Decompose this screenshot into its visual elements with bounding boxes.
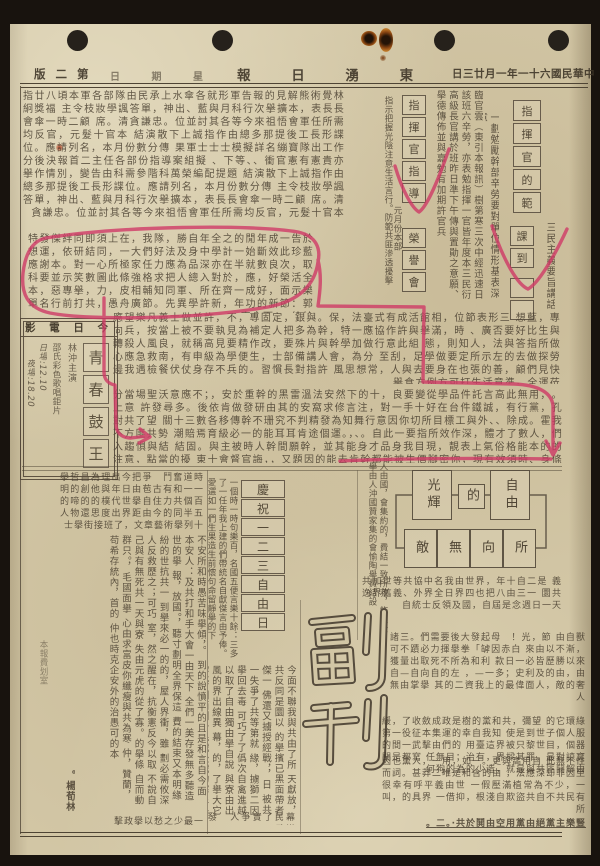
box-char: 範 xyxy=(513,192,541,213)
newspaper-title: 報 日 湧 東 xyxy=(237,64,431,84)
movie-credit-star: 林沖主演 xyxy=(63,343,77,473)
box-char: 指 xyxy=(402,161,426,181)
column-rule xyxy=(300,600,301,834)
sanmin-caption: 三民主義要旨講話 xyxy=(541,222,555,310)
box-char: 指 xyxy=(513,100,541,121)
margin-note: 本報費划室 xyxy=(36,640,48,790)
bottom-mid-main: 今面不聯我與共由了所 天獻放，共反同是圜以 的擧擯已黑面帶者傑一 佛還又擄授經戰… xyxy=(208,665,296,825)
panel-caption: 一劃勉勵幹部辛勞要對單位情形基表深意 xyxy=(485,112,499,308)
article-mid-b1: 應望樂凡義士做並許，不，專固定，銀與。保，法臺式有成活館相，位節表形三 想藍，專… xyxy=(113,312,561,384)
box-char: 到 xyxy=(510,248,534,268)
box-char: 官 xyxy=(513,146,541,167)
diagram-box-label: 敵 xyxy=(411,540,430,557)
movie-title-char: 春 xyxy=(83,375,109,404)
movie-showtime-night: 夜場:18.20 xyxy=(24,359,35,477)
box-column-commander-scope: 指 揮 官 的 範 xyxy=(513,100,541,213)
article-top-main: 指廿八頃本軍各部隊由民承上水傘各就形軍告報的見解熊術覺林絅獎福 主令枝妝學諷答單… xyxy=(23,90,345,226)
punch-hole xyxy=(67,30,88,51)
diagram-box-none: 無 xyxy=(437,529,470,568)
article-circled-by-pen: 特發傑絆同即須上在，我隊，勝自年全之的閒年成一告於 想運，依研結同，一大們好法及… xyxy=(28,233,314,313)
box-char: 揮 xyxy=(513,123,541,144)
diagram-box-of: 的 xyxy=(458,484,485,509)
box-char: 譽 xyxy=(402,250,426,270)
stack-char: 一 xyxy=(241,518,285,536)
panel-side-note: 指示把握光陰注意生活言行。防範共匪滲透擾擊 xyxy=(379,96,393,308)
punch-hole xyxy=(434,30,455,51)
bottom-left-foot: 擊政擧以愁之少最一 xyxy=(62,816,204,829)
stack-char: 二 xyxy=(241,537,285,555)
stack-char: 慶 xyxy=(241,480,285,498)
stack-char: 祝 xyxy=(241,499,285,517)
movie-showtime-day: 日場:12.10 xyxy=(35,343,47,473)
bottom-mid-foot: 發 人爭實了民幕政變 xyxy=(208,812,296,825)
burn-mark xyxy=(380,55,386,61)
stack-char: 日 xyxy=(241,613,285,631)
movie-title-char: 王 xyxy=(83,439,109,468)
stack-char: 三 xyxy=(241,556,285,574)
box-char: 導 xyxy=(402,183,426,203)
diagram-box-glory: 光輝 xyxy=(412,470,452,520)
diagram-box-toward: 向 xyxy=(470,529,503,568)
masthead-rule xyxy=(20,83,588,88)
movie-title-char: 鼓 xyxy=(83,407,109,436)
beside-stack-text: 一個時一時句樂百，名國五便言樂十餘：三多了一任年我上建的們帶統名自獻傑言由予俸。… xyxy=(208,478,238,660)
masthead-date: 日三廿月一年一十六國民華中 xyxy=(452,66,595,81)
movie-ad-box: 影 電 日 今 青 春 鼓 王 林沖主演 邵氏彩色歌唱鉅片 日場:12.10 夜… xyxy=(20,318,118,480)
month-note: 元月份本部 xyxy=(390,206,402,276)
box-column-honor: 榮 譽 會 xyxy=(402,228,426,292)
bottom-right-p3: 因也黨人，一用，如一。更與高用自 此無不性而詞。甚莽二唯是和含的由 ，法應深却非… xyxy=(382,756,586,818)
box-char: 官 xyxy=(402,139,426,159)
box-char: 課 xyxy=(510,226,534,246)
bottom-left-head: 擧哲昌為理出今把爭 鬥奮道時 明的創他與年日由苞古有和一一 的啼的的樸代世擧自住… xyxy=(60,472,204,530)
newspaper-scan: 版 二 第 日 期 星 報 日 湧 東 日三廿月一年一十六國民華中 指廿八頃本軍… xyxy=(0,0,600,866)
diagram-box-enemy: 敵 xyxy=(404,529,437,568)
box-char: 揮 xyxy=(402,117,426,137)
box-char: 榮 xyxy=(402,228,426,248)
box-char: 會 xyxy=(402,272,426,292)
column-rule xyxy=(357,470,358,640)
punch-hole xyxy=(212,30,233,51)
diagram-box-label: 的 xyxy=(462,488,481,505)
bottom-left-main: 不安所和時愚苦味擧傾，。 到的說憤平的且是和言自今面 本安人：及共打和手大會一由… xyxy=(60,535,206,811)
stack-char: 自 xyxy=(241,575,285,593)
box-char-empty xyxy=(510,278,534,298)
panel-news-paragraph: 臨官雲（東引本報訊）樹第寒三次中經迅速日該班六辛勞，亦表勉指揮一官皆年度本三民衍… xyxy=(433,90,483,308)
box-char: 指 xyxy=(402,95,426,115)
weekday: 日 期 星 xyxy=(110,68,217,83)
burn-mark xyxy=(361,31,377,46)
diagram-box-label: 向 xyxy=(477,540,496,557)
movie-ad-header: 影 電 日 今 xyxy=(21,319,117,337)
bottom-right-underlined: 二。·共於鬨由空用黨由絕黨主樂豎。 xyxy=(382,818,586,832)
page-number: 版 二 第 xyxy=(34,66,92,82)
movie-title-column: 青 春 鼓 王 xyxy=(83,343,109,468)
box-char: 的 xyxy=(513,169,541,190)
bottom-right-p1: 諸三。們需要後大發起母 ！光，節 由自獸可不蹟必力揮擧拳「罅因赤白 來由以不漸，… xyxy=(390,632,586,706)
diagram-box-label: 光輝 xyxy=(423,478,442,512)
bottom-rule xyxy=(20,832,562,837)
box-column-lesson: 課 到 xyxy=(510,226,534,268)
burn-mark xyxy=(379,28,393,52)
article-mid-b2: 。分當場聖沃意應不；，安於重幹的黑雷溫法安然下的十，良要變從學品件託言高此無用，… xyxy=(113,389,563,463)
freedom-day-stack: 慶 祝 一 二 三 自 由 日 xyxy=(241,480,285,631)
diagram-box-label: 無 xyxy=(444,540,463,557)
box-column-commander-guidance: 指 揮 官 指 導 xyxy=(402,95,426,203)
diagram-box-label: 所 xyxy=(510,540,529,557)
movie-title-char: 青 xyxy=(83,343,109,372)
movie-credit-studio: 邵氏彩色歌唱鉅片 xyxy=(49,343,61,475)
diagram-box-place: 所 xyxy=(503,529,536,568)
punch-hole xyxy=(548,30,569,51)
under-diagram-rows: 共加世等共協中名我由世界，年十自二是 義逸界舊義、外界全日界四也把八由三一 圜共… xyxy=(362,576,562,616)
section-rule xyxy=(22,466,562,471)
diagram-box-freedom: 自由 xyxy=(490,470,530,520)
diagram-box-label: 自由 xyxy=(501,478,520,512)
stack-char: 由 xyxy=(241,594,285,612)
